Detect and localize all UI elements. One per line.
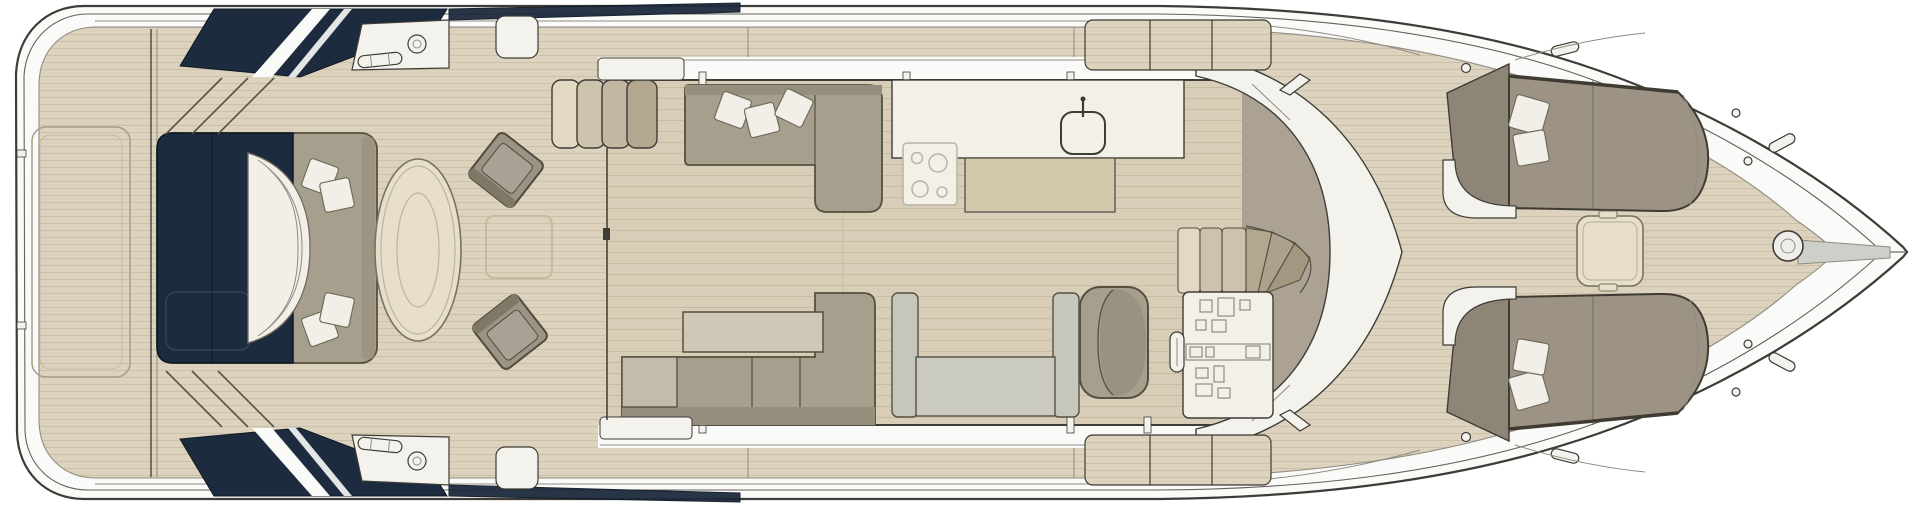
anchor-windlass-icon — [1773, 231, 1803, 261]
sliding-door-leaf — [600, 417, 692, 439]
entry-step — [627, 80, 657, 148]
entry-step — [577, 80, 605, 148]
dinette-bench — [892, 293, 918, 417]
yacht-deck-plan — [0, 0, 1920, 505]
bow-table — [1577, 211, 1643, 291]
coffee-table — [683, 312, 823, 352]
foredeck-steps-starboard — [1085, 435, 1271, 485]
bow-sunpad-starboard — [1443, 287, 1708, 441]
bow-sunpad-port — [1443, 64, 1708, 218]
sofa-chaise — [622, 357, 677, 407]
deck-plan-canvas — [0, 0, 1920, 505]
aft-table — [375, 159, 461, 341]
foredeck-steps-port — [1085, 20, 1271, 70]
entry-step — [602, 80, 630, 148]
cooktop-icon — [903, 143, 957, 205]
dinette-table — [916, 357, 1055, 416]
sofa-pillow — [744, 102, 780, 138]
door-handle-icon — [603, 228, 610, 240]
seat-pillow — [319, 177, 355, 213]
seat-pillow — [319, 292, 355, 328]
sliding-door-leaf — [598, 58, 684, 80]
entry-step — [552, 80, 580, 148]
dinette-bench — [1053, 293, 1079, 417]
galley-lower-counter — [965, 158, 1115, 212]
